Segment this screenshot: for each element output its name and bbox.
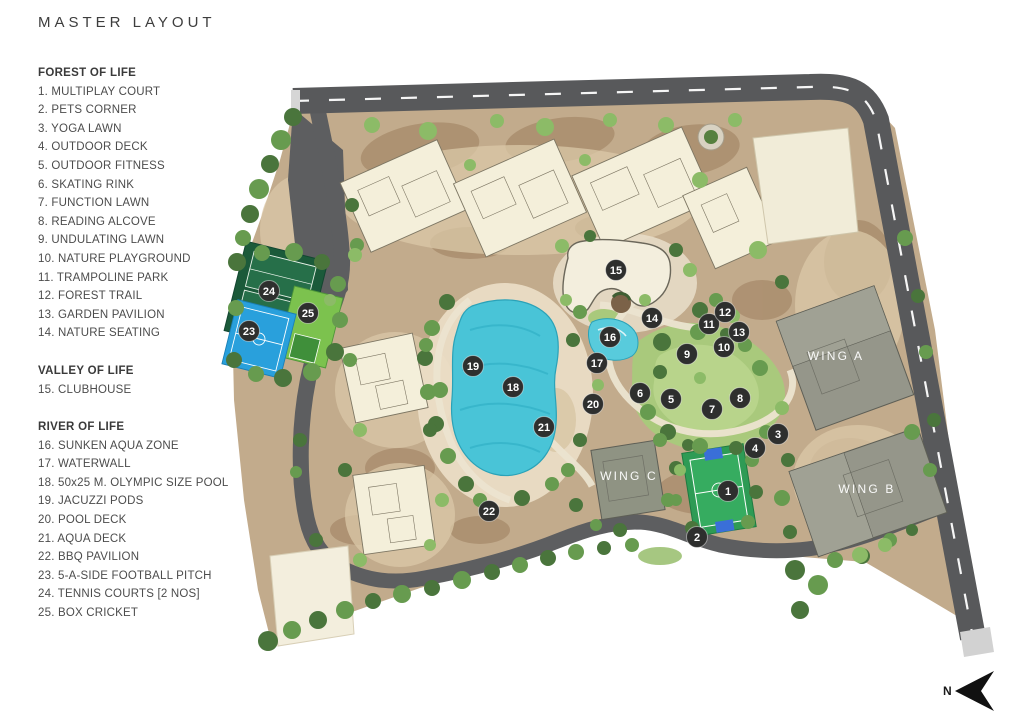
master-layout-page: MASTER LAYOUT FOREST OF LIFE1. MULTIPLAY…	[0, 0, 1024, 724]
map-marker-7: 7	[702, 399, 723, 420]
marker-number: 21	[538, 422, 550, 434]
marker-number: 23	[243, 326, 255, 338]
roundabout	[698, 124, 724, 150]
map-marker-5: 5	[661, 389, 682, 410]
map-marker-18: 18	[503, 377, 524, 398]
marker-number: 5	[668, 394, 674, 406]
compass-n-label: N	[943, 684, 952, 698]
map-marker-14: 14	[642, 308, 663, 329]
map-marker-12: 12	[715, 302, 736, 323]
marker-number: 12	[719, 307, 731, 319]
marker-number: 25	[302, 308, 314, 320]
road-end	[960, 627, 994, 657]
marker-number: 11	[703, 319, 715, 331]
marker-number: 2	[694, 532, 700, 544]
marker-number: 18	[507, 382, 519, 394]
map-marker-15: 15	[606, 260, 627, 281]
map-marker-22: 22	[479, 501, 500, 522]
map-marker-1: 1	[718, 481, 739, 502]
marker-number: 6	[637, 388, 643, 400]
map-marker-24: 24	[259, 281, 280, 302]
open-plot-southwest	[270, 546, 354, 646]
site-plan-map: WING AWING BWING C 123456789101112131415…	[0, 0, 1024, 724]
marker-number: 17	[591, 358, 603, 370]
map-marker-4: 4	[745, 438, 766, 459]
marker-number: 10	[718, 342, 730, 354]
map-marker-13: 13	[729, 322, 750, 343]
marker-number: 22	[483, 506, 495, 518]
wing-label: WING C	[600, 469, 658, 483]
map-marker-23: 23	[239, 321, 260, 342]
marker-number: 13	[733, 327, 745, 339]
map-marker-19: 19	[463, 356, 484, 377]
marker-number: 7	[709, 404, 715, 416]
compass: N	[943, 671, 994, 711]
marker-number: 9	[684, 349, 690, 361]
marker-number: 15	[610, 265, 622, 277]
open-plot-northeast	[753, 128, 858, 244]
map-marker-21: 21	[534, 417, 555, 438]
map-marker-25: 25	[298, 303, 319, 324]
marker-number: 24	[263, 286, 276, 298]
marker-number: 19	[467, 361, 479, 373]
map-marker-8: 8	[730, 388, 751, 409]
wing-label: WING A	[808, 349, 865, 363]
marker-number: 16	[604, 332, 616, 344]
map-marker-9: 9	[677, 344, 698, 365]
marker-number: 8	[737, 393, 743, 405]
marker-number: 4	[752, 443, 759, 455]
marker-number: 20	[587, 399, 599, 411]
map-marker-6: 6	[630, 383, 651, 404]
marker-number: 14	[646, 313, 659, 325]
map-marker-2: 2	[687, 527, 708, 548]
marker-number: 3	[775, 429, 781, 441]
marker-number: 1	[725, 486, 731, 498]
map-marker-3: 3	[768, 424, 789, 445]
map-marker-17: 17	[587, 353, 608, 374]
map-marker-16: 16	[600, 327, 621, 348]
wing-label: WING B	[838, 482, 895, 496]
north-arrow-icon	[955, 671, 994, 711]
map-marker-20: 20	[583, 394, 604, 415]
